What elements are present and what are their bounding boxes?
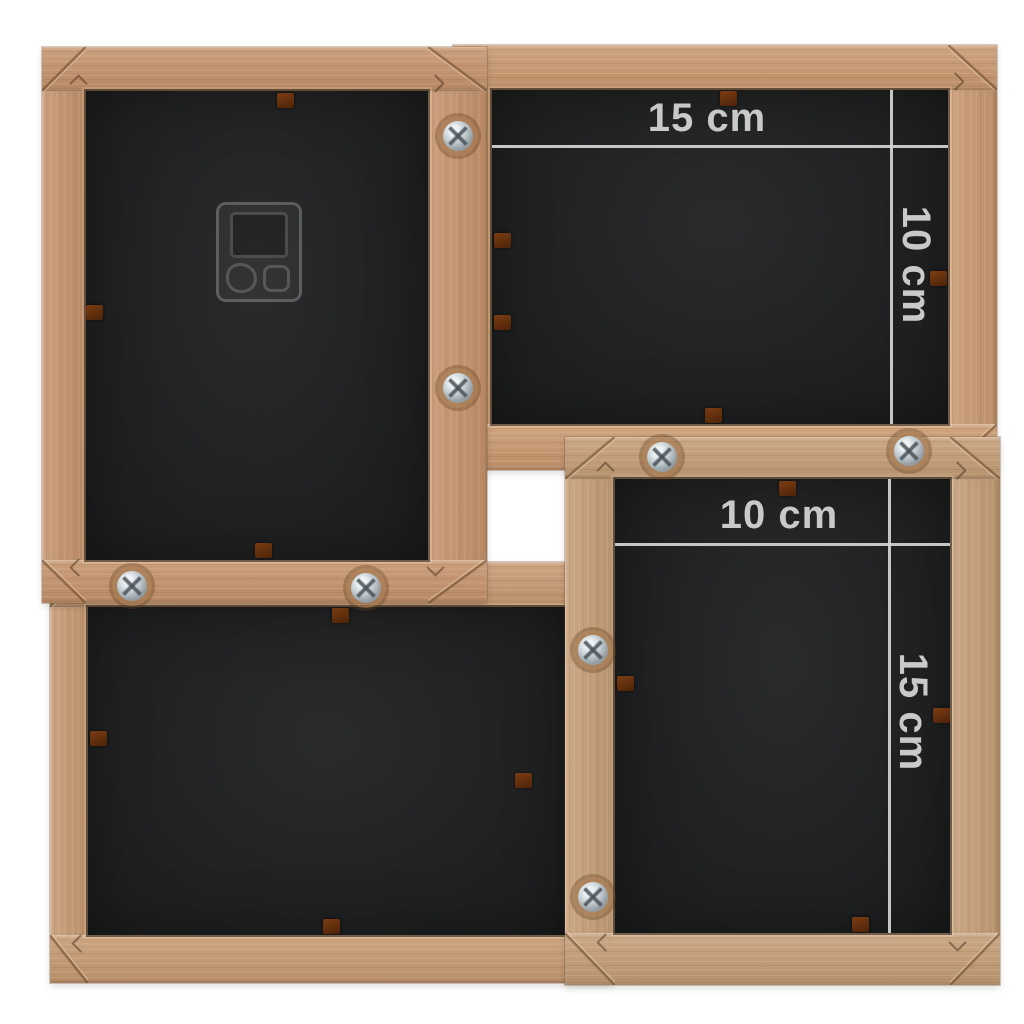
backing-clip bbox=[720, 91, 737, 106]
backing-clip bbox=[332, 608, 349, 623]
backing-clip bbox=[617, 676, 634, 691]
rail-bottom bbox=[50, 935, 613, 983]
screw-cross-slot bbox=[650, 445, 674, 469]
hanging-bracket bbox=[216, 202, 302, 302]
screw-cross-slot bbox=[446, 124, 470, 148]
phillips-screw bbox=[117, 571, 147, 601]
backing-clip bbox=[255, 543, 272, 558]
backing-clip bbox=[515, 773, 532, 788]
dimension-line-vertical bbox=[890, 90, 893, 424]
rail-right bbox=[950, 479, 1000, 933]
backing-panel: 10 cm 15 cm bbox=[615, 479, 950, 933]
dimension-line-horizontal bbox=[615, 543, 950, 546]
backing-clip bbox=[494, 315, 511, 330]
backing-panel: 15 cm 10 cm bbox=[492, 90, 948, 424]
backing-clip bbox=[323, 919, 340, 934]
backing-clip bbox=[277, 93, 294, 108]
screw-cross-slot bbox=[354, 576, 378, 600]
screw-cross-slot bbox=[581, 885, 605, 909]
backing-clip bbox=[705, 408, 722, 423]
hanger-hole bbox=[226, 263, 257, 293]
phillips-screw bbox=[443, 121, 473, 151]
frame-bottom-right: 10 cm 15 cm bbox=[565, 437, 1000, 985]
dimension-label-height: 10 cm bbox=[896, 206, 936, 324]
rail-top bbox=[453, 45, 997, 90]
rail-top bbox=[42, 47, 487, 91]
backing-clip bbox=[86, 305, 103, 320]
phillips-screw bbox=[578, 882, 608, 912]
frame-top-right: 15 cm 10 cm bbox=[453, 45, 997, 470]
backing-clip bbox=[933, 708, 950, 723]
backing-clip bbox=[852, 917, 869, 932]
rail-right bbox=[428, 91, 487, 560]
dimension-label-width: 15 cm bbox=[648, 98, 766, 138]
rail-top bbox=[565, 437, 1000, 479]
phillips-screw bbox=[351, 573, 381, 603]
phillips-screw bbox=[894, 436, 924, 466]
phillips-screw bbox=[647, 442, 677, 472]
phillips-screw bbox=[578, 635, 608, 665]
rail-right bbox=[948, 90, 997, 424]
screw-cross-slot bbox=[446, 376, 470, 400]
phillips-screw bbox=[443, 373, 473, 403]
hanger-hole bbox=[263, 265, 290, 292]
backing-clip bbox=[90, 731, 107, 746]
hanger-slot bbox=[230, 212, 288, 258]
screw-cross-slot bbox=[120, 574, 144, 598]
rail-left bbox=[42, 91, 86, 560]
dimension-line-horizontal bbox=[492, 145, 948, 148]
backing-panel bbox=[86, 91, 428, 560]
collage-frame-photo: 15 cm 10 cm 10 cm 15 cm bbox=[0, 0, 1024, 1024]
rail-left bbox=[50, 607, 88, 935]
rail-bottom bbox=[42, 560, 487, 603]
frame-bottom-left bbox=[50, 562, 613, 983]
rail-bottom bbox=[565, 933, 1000, 985]
screw-cross-slot bbox=[581, 638, 605, 662]
backing-panel bbox=[88, 607, 565, 935]
rail-left bbox=[565, 479, 615, 933]
dimension-label-width: 10 cm bbox=[720, 495, 838, 535]
backing-clip bbox=[494, 233, 511, 248]
backing-clip bbox=[930, 271, 947, 286]
backing-clip bbox=[779, 481, 796, 496]
screw-cross-slot bbox=[897, 439, 921, 463]
frame-top-left bbox=[42, 47, 487, 603]
dimension-label-height: 15 cm bbox=[893, 653, 933, 771]
